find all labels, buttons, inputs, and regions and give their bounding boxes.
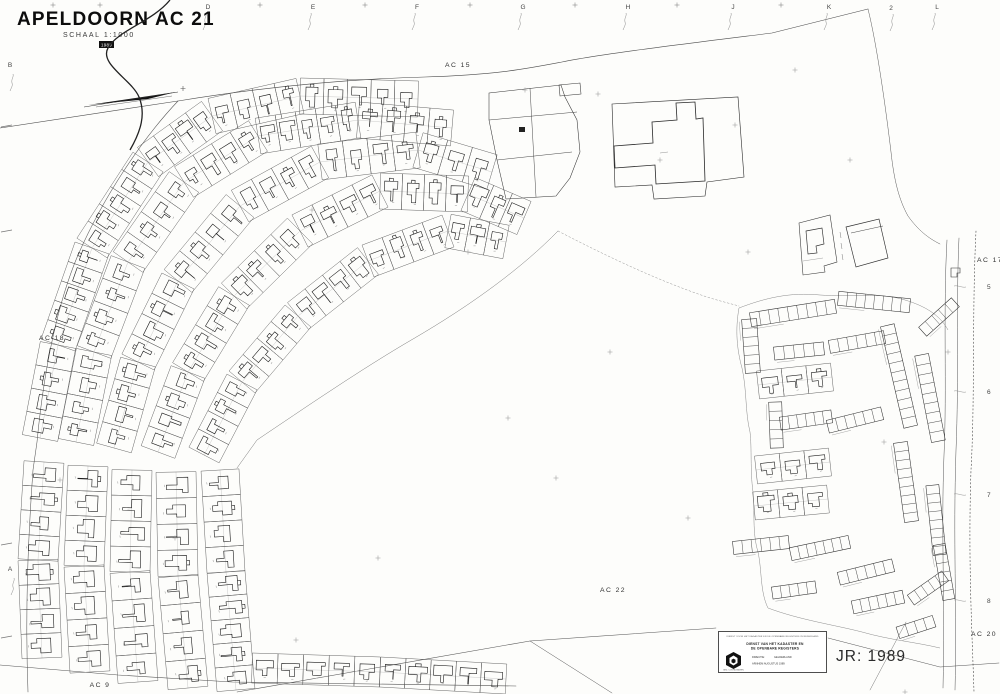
east-dotted-municipal-line — [970, 231, 976, 692]
inner-crescent-edge — [237, 231, 558, 468]
cadastral-map-canvas: DEFGHJKLBA56782 AC 15AC 18AC 17AC 20AC 2… — [0, 0, 1000, 694]
cluster-a-line — [803, 258, 823, 261]
terraced-row — [826, 407, 884, 436]
survey-cross — [746, 250, 751, 255]
edge-dash — [1, 636, 12, 638]
stamp-top-line: DIENST VOOR HET KADASTER EN DE OPENBARE … — [727, 635, 819, 638]
cluster-divider — [497, 152, 572, 160]
region-label: AC 22 — [600, 587, 626, 594]
region-labels: AC 15AC 18AC 17AC 20AC 22AC 9 — [39, 62, 1000, 689]
terraced-row — [837, 291, 910, 315]
stamp-line-2: DE OPENBARE REGISTERS — [751, 647, 800, 651]
stamp-directie-value: GELDERLAND — [774, 655, 792, 659]
grid-leader — [954, 391, 966, 392]
edge-squiggle — [10, 74, 13, 91]
west-boundary — [27, 101, 178, 692]
right-neighbourhood-outline — [737, 294, 948, 648]
survey-cross — [294, 638, 299, 643]
grid-letter: H — [626, 4, 631, 11]
stray-parcel-number: 2 — [889, 5, 893, 12]
survey-cross — [523, 88, 528, 93]
grid-tick — [779, 3, 784, 8]
survey-cross — [58, 478, 63, 483]
edge-squiggle — [932, 13, 935, 30]
terraced-row — [878, 324, 917, 429]
cluster-a-parcel — [799, 215, 837, 275]
east-strip-line-1 — [943, 240, 947, 688]
terraced-row — [749, 299, 837, 329]
survey-cross — [848, 158, 853, 163]
survey-cross — [686, 516, 691, 521]
grid-tick — [98, 3, 103, 8]
region-label: AC 9 — [90, 682, 111, 689]
region-label: AC 15 — [445, 62, 471, 69]
cluster-path-dashes — [840, 232, 843, 260]
top-parcel-cluster — [489, 83, 581, 199]
parcel-row — [754, 448, 831, 484]
survey-cross — [733, 123, 738, 128]
region-label: AC 17 — [977, 257, 1000, 264]
compound-parcel-outline — [612, 97, 744, 199]
stamp-line-1: DIENST VAN HET KADASTER EN — [746, 642, 804, 646]
grid-letter: E — [311, 4, 316, 11]
terraced-row — [912, 353, 945, 443]
cadastral-map-sheet: DEFGHJKLBA56782 AC 15AC 18AC 17AC 20AC 2… — [0, 0, 1000, 694]
grid-letter: K — [827, 4, 832, 11]
survey-cross — [793, 68, 798, 73]
survey-cross — [882, 440, 887, 445]
edge-squiggle — [824, 13, 827, 30]
survey-cross — [658, 158, 663, 163]
grid-number: 7 — [987, 492, 991, 499]
strip-house — [951, 268, 960, 277]
grid-tick — [363, 3, 368, 8]
parcel-row — [18, 461, 64, 659]
connector-line — [558, 231, 739, 306]
title-block: APELDOORN AC 21 SCHAAL 1:1000 1989 — [17, 0, 215, 150]
survey-cross — [376, 556, 381, 561]
outline-north — [739, 294, 948, 330]
grid-leader — [954, 494, 966, 495]
terraced-row — [773, 342, 824, 363]
grid-letter: F — [415, 4, 419, 11]
mid-right-cluster — [799, 215, 888, 275]
region-label: AC 20 — [971, 631, 997, 638]
kadaster-stamp: DIENST VOOR HET KADASTER EN DE OPENBARE … — [719, 632, 827, 673]
parcel-row — [110, 470, 158, 684]
stamp-directie-label: DIRECTIE: — [752, 655, 765, 659]
cluster-b-divider — [851, 226, 883, 233]
survey-cross — [506, 416, 511, 421]
grid-number: 6 — [987, 389, 991, 396]
terraced-row — [739, 319, 760, 374]
stamp-foot-line: GEZ. COORDINATEN — [723, 669, 744, 672]
grid-tick — [51, 3, 56, 8]
dark-outbuilding — [519, 127, 525, 132]
edge-squiggle — [412, 13, 415, 30]
parcel-row — [252, 653, 507, 694]
outline-west — [737, 308, 768, 608]
grid-letter: J — [731, 4, 734, 11]
cluster-divider — [489, 112, 577, 120]
edge-squiggle — [623, 13, 626, 30]
year-reference: JR: 1989 — [836, 648, 906, 665]
grid-letter: L — [935, 4, 939, 11]
survey-cross — [554, 476, 559, 481]
building-footprint — [614, 102, 705, 184]
terraced-row — [891, 441, 918, 523]
terraced-row — [766, 402, 783, 449]
scratch-mark — [84, 86, 186, 107]
parcel-row — [201, 469, 255, 692]
edge-squiggle — [728, 13, 731, 30]
edge-squiggle — [890, 14, 893, 31]
map-title: APELDOORN AC 21 — [17, 9, 215, 30]
survey-cross — [466, 250, 471, 255]
grid-number: 8 — [987, 598, 991, 605]
terraced-row — [732, 536, 789, 557]
parcel-row — [756, 363, 833, 399]
large-building-compound — [612, 97, 744, 199]
terraced-row — [896, 615, 937, 641]
grid-tick — [258, 3, 263, 8]
terraced-row — [919, 298, 961, 338]
terraced-row — [779, 410, 833, 433]
grid-letter: G — [520, 4, 525, 11]
south-diagonal-boundary — [237, 628, 716, 692]
edge-squiggle — [518, 13, 521, 30]
northeast-boundary — [868, 9, 940, 244]
cluster-outline — [489, 85, 580, 199]
parcel-row — [141, 173, 531, 458]
grid-tick — [573, 3, 578, 8]
grid-tick — [675, 3, 680, 8]
parcel-row — [156, 472, 208, 690]
survey-cross — [596, 92, 601, 97]
parcel-texture — [18, 78, 961, 694]
cluster-divider — [530, 88, 536, 197]
region-label: AC 18 — [39, 335, 65, 342]
stamp-place-line: ARNHEM AUGUSTUS 1989 — [752, 662, 785, 666]
edge-squiggle — [11, 578, 14, 595]
survey-marks — [1, 13, 951, 694]
survey-cross — [946, 350, 951, 355]
grid-number: 5 — [987, 284, 991, 291]
survey-cross — [608, 350, 613, 355]
south-branch — [530, 641, 612, 693]
cluster-a-house — [806, 228, 824, 254]
grid-leader — [954, 286, 966, 287]
grid-letter: A — [8, 566, 13, 573]
edge-squiggle — [308, 13, 311, 30]
building-detail-line — [660, 152, 668, 153]
grid-leader — [954, 600, 966, 601]
terraced-row — [851, 590, 905, 616]
terraced-row — [789, 535, 851, 563]
edge-dash — [1, 230, 12, 232]
terraced-row — [837, 559, 895, 588]
terraced-row — [771, 581, 817, 601]
parcel-row — [189, 214, 509, 463]
grid-tick — [468, 3, 473, 8]
terraced-row — [828, 331, 886, 356]
survey-cross — [903, 690, 908, 694]
parcel-row — [64, 465, 110, 673]
edge-dash — [1, 543, 12, 545]
grid-letter: B — [8, 62, 12, 69]
parcel-row — [753, 485, 830, 520]
